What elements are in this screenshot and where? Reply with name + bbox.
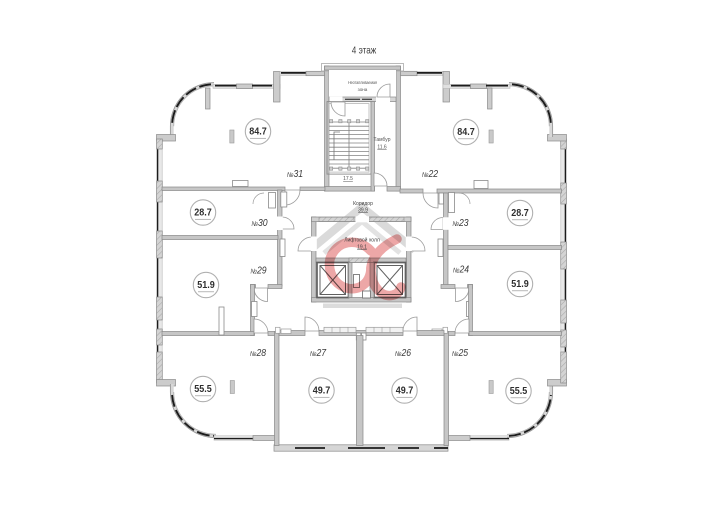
svg-text:51.9: 51.9 <box>197 279 215 291</box>
svg-text:84.7: 84.7 <box>457 126 475 138</box>
svg-text:19.1: 19.1 <box>357 245 367 251</box>
svg-text:51.9: 51.9 <box>511 278 529 290</box>
svg-text:17.5: 17.5 <box>343 176 353 182</box>
svg-text:49.7: 49.7 <box>396 385 414 397</box>
svg-text:Коридор: Коридор <box>353 201 373 207</box>
svg-text:4 этаж: 4 этаж <box>352 45 377 57</box>
svg-text:Тамбур: Тамбур <box>374 137 391 143</box>
svg-text:Неотапливаемая: Неотапливаемая <box>348 80 377 85</box>
svg-text:39.9: 39.9 <box>358 208 368 214</box>
svg-text:84.7: 84.7 <box>249 126 267 138</box>
svg-text:11.6: 11.6 <box>377 145 387 151</box>
svg-text:49.7: 49.7 <box>313 385 331 397</box>
svg-text:зона: зона <box>358 87 368 92</box>
svg-text:Лифтовой холл: Лифтовой холл <box>344 237 380 244</box>
svg-text:28.7: 28.7 <box>511 207 529 219</box>
svg-text:55.5: 55.5 <box>510 385 528 397</box>
svg-text:55.5: 55.5 <box>194 383 212 395</box>
svg-text:28.7: 28.7 <box>194 207 212 219</box>
